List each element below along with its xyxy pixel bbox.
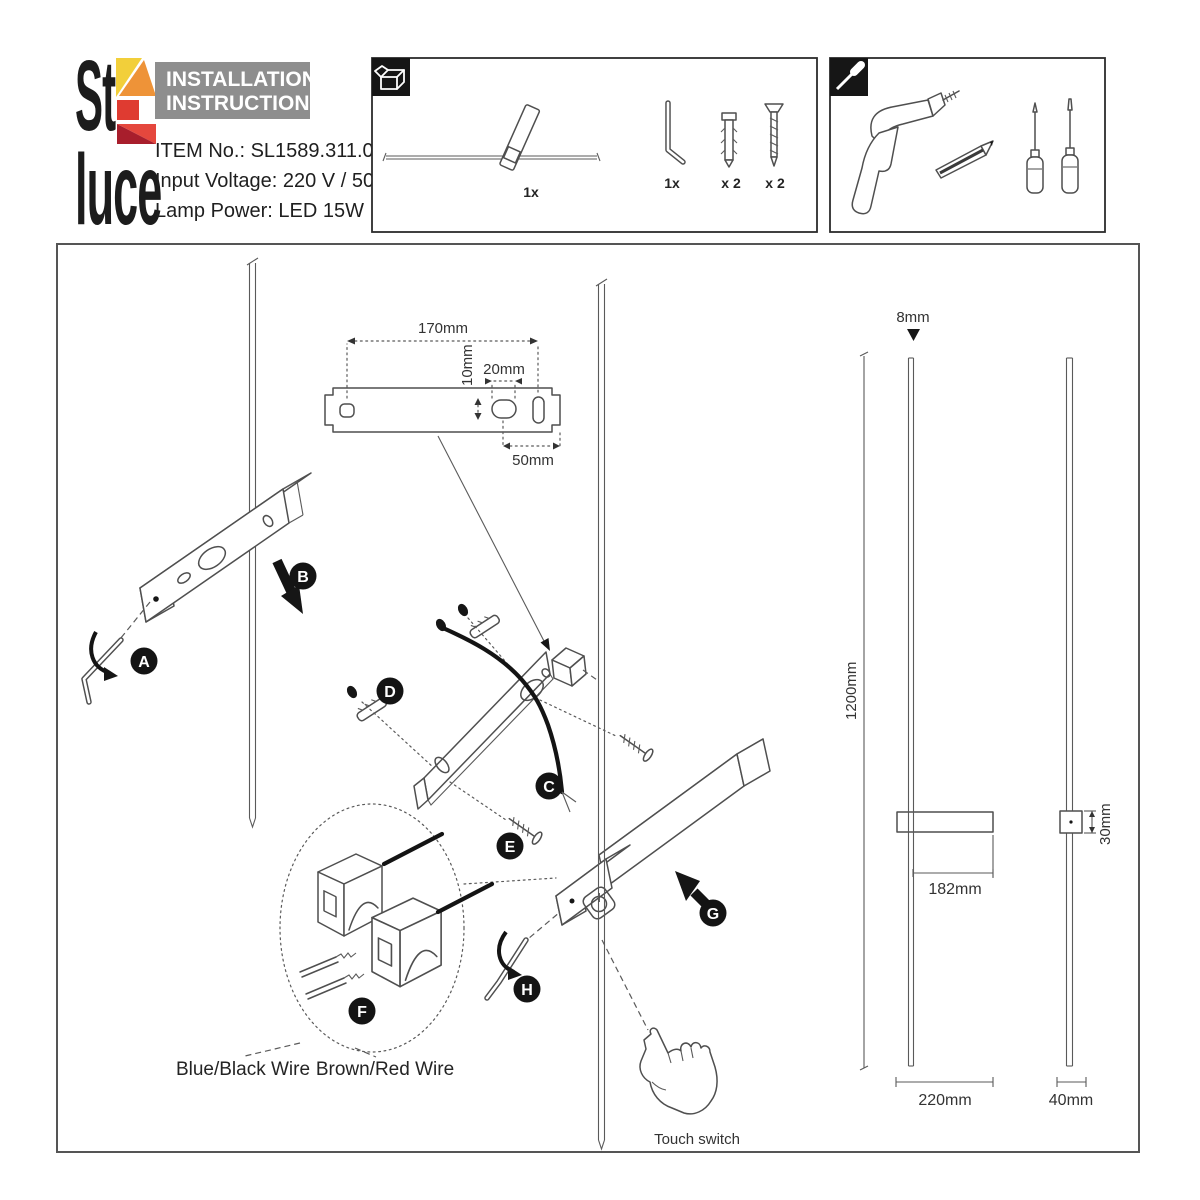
anchor-qty: x 2 bbox=[721, 175, 741, 191]
dim-1200mm: 1200mm bbox=[843, 662, 860, 720]
dim-170mm: 170mm bbox=[418, 320, 468, 337]
screw-qty: x 2 bbox=[765, 175, 785, 191]
step-badge-d: D bbox=[377, 678, 404, 705]
svg-text:E: E bbox=[505, 839, 516, 856]
lamp-power: Lamp Power: LED 15W bbox=[155, 200, 364, 222]
tools-box bbox=[830, 58, 1105, 232]
svg-text:D: D bbox=[384, 684, 396, 701]
step-badge-f: F bbox=[349, 998, 376, 1025]
dim-40mm: 40mm bbox=[1049, 1092, 1093, 1109]
svg-text:C: C bbox=[543, 779, 555, 796]
step-badge-h: H bbox=[514, 976, 541, 1003]
step-badge-b: B bbox=[290, 563, 317, 590]
logo-triangles-icon bbox=[116, 58, 156, 144]
package-contents-box: 1x 1x x 2 bbox=[372, 58, 817, 232]
wire-label-brown-red: Brown/Red Wire bbox=[316, 1059, 454, 1080]
lamp-front-view-box bbox=[897, 812, 993, 832]
step-badge-a: A bbox=[131, 648, 158, 675]
instruction-sheet: St luce INSTALLATION INSTRUCTIONS ITEM N… bbox=[0, 0, 1200, 1200]
sheet-canvas: St luce INSTALLATION INSTRUCTIONS ITEM N… bbox=[0, 0, 1200, 1200]
title-block: INSTALLATION INSTRUCTIONS bbox=[155, 62, 324, 119]
svg-text:F: F bbox=[357, 1004, 367, 1021]
set-screw-dot bbox=[153, 596, 159, 602]
touch-switch-label: Touch switch bbox=[654, 1131, 740, 1148]
step-badge-c: C bbox=[536, 773, 563, 800]
dim-182mm: 182mm bbox=[928, 881, 981, 898]
dim-30mm: 30mm bbox=[1097, 803, 1114, 845]
hex-key-qty: 1x bbox=[664, 175, 680, 191]
dim-20mm: 20mm bbox=[483, 361, 525, 378]
brand-logo: St luce bbox=[75, 41, 161, 246]
item-info: ITEM No.: SL1589.311.01 Input Voltage: 2… bbox=[155, 140, 399, 222]
svg-text:A: A bbox=[138, 654, 150, 671]
title-line1: INSTALLATION bbox=[166, 68, 317, 91]
svg-text:H: H bbox=[521, 982, 533, 999]
svg-text:B: B bbox=[297, 569, 309, 586]
main-diagram-panel: 170mm 20mm 10mm 50mm bbox=[57, 244, 1139, 1152]
lamp-qty: 1x bbox=[523, 184, 539, 200]
dim-8mm: 8mm bbox=[896, 309, 929, 326]
step-badge-e: E bbox=[497, 833, 524, 860]
dim-220mm: 220mm bbox=[918, 1092, 971, 1109]
wire-label-blue-black: Blue/Black Wire bbox=[176, 1059, 310, 1080]
dim-10mm: 10mm bbox=[459, 344, 476, 386]
logo-text-bottom: luce bbox=[75, 135, 161, 246]
step-badge-g: G bbox=[700, 900, 727, 927]
dim-50mm: 50mm bbox=[512, 452, 554, 469]
input-voltage: Input Voltage: 220 V / 50Hz bbox=[155, 170, 399, 192]
title-line2: INSTRUCTIONS bbox=[166, 92, 324, 115]
item-number: ITEM No.: SL1589.311.01 bbox=[155, 140, 385, 162]
svg-text:G: G bbox=[707, 906, 719, 923]
